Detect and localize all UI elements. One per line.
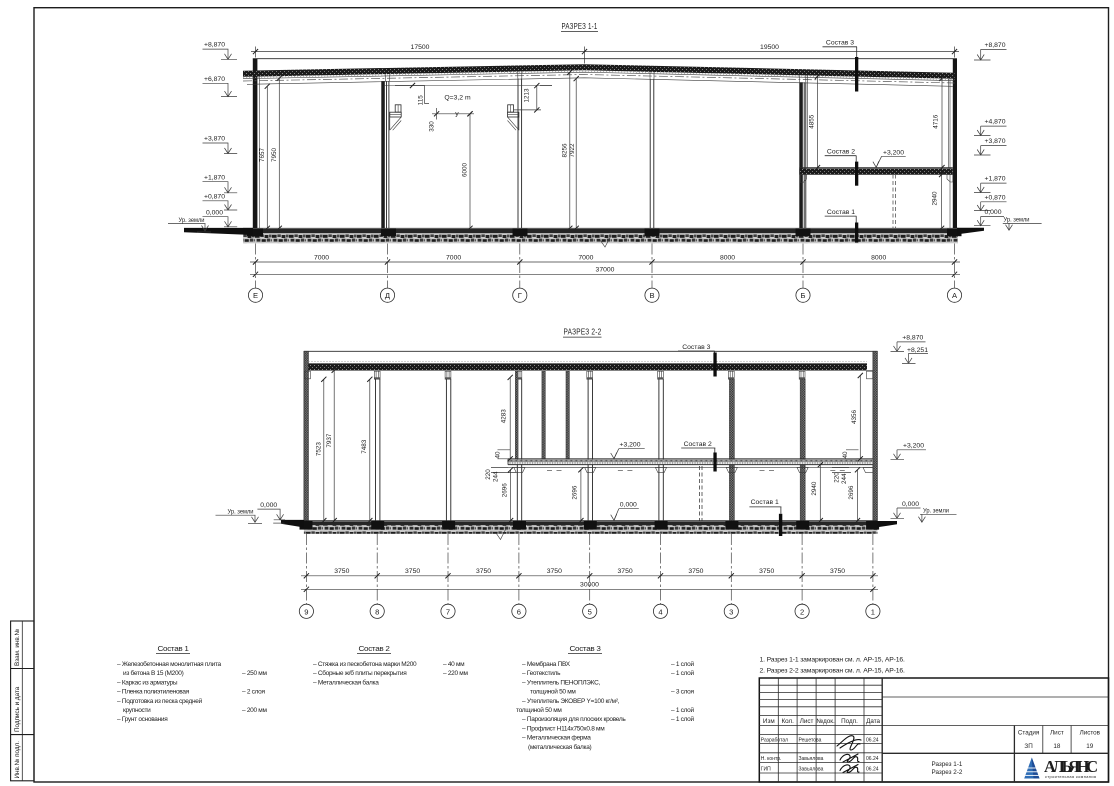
svg-text:– 1 слой: – 1 слой	[671, 706, 694, 714]
svg-text:8256: 8256	[562, 143, 569, 158]
svg-text:– 3 слоя: – 3 слоя	[671, 689, 694, 696]
svg-text:0,000: 0,000	[902, 501, 919, 508]
svg-text:Решетова: Решетова	[799, 738, 822, 744]
svg-text:2696: 2696	[848, 485, 855, 500]
svg-text:ЗП: ЗП	[1024, 743, 1033, 750]
svg-text:крупности: крупности	[123, 707, 151, 714]
svg-text:3: 3	[729, 607, 733, 616]
svg-text:+3,870: +3,870	[985, 138, 1006, 145]
svg-text:Б: Б	[801, 291, 806, 300]
svg-text:3750: 3750	[334, 568, 349, 575]
svg-text:+1,870: +1,870	[204, 174, 225, 181]
svg-text:толщиной 50 мм: толщиной 50 мм	[516, 706, 562, 714]
svg-text:17500: 17500	[411, 44, 430, 51]
svg-text:0,000: 0,000	[206, 209, 223, 216]
svg-text:– Грунт основания: – Грунт основания	[117, 716, 168, 723]
svg-text:Состав 2: Состав 2	[359, 644, 390, 653]
svg-text:толщиной 50 мм: толщиной 50 мм	[530, 688, 576, 696]
svg-text:+3,870: +3,870	[204, 136, 225, 143]
svg-text:– 200 мм: – 200 мм	[242, 707, 267, 714]
svg-text:Состав 1: Состав 1	[751, 499, 779, 506]
svg-text:Подп.: Подп.	[841, 718, 858, 725]
svg-text:Д: Д	[385, 291, 390, 300]
svg-text:Состав 3: Состав 3	[826, 40, 854, 47]
svg-text:7000: 7000	[446, 254, 461, 261]
svg-text:+3,200: +3,200	[620, 442, 641, 449]
svg-text:40: 40	[495, 451, 502, 459]
svg-text:0,000: 0,000	[620, 502, 637, 509]
svg-text:Завьялова: Завьялова	[799, 767, 824, 773]
svg-text:Ур. земли: Ур. земли	[1004, 216, 1030, 223]
svg-text:– 40 мм: – 40 мм	[443, 661, 465, 668]
svg-text:Лист: Лист	[1050, 730, 1064, 737]
svg-text:Состав 2: Состав 2	[827, 149, 855, 156]
svg-text:7657: 7657	[259, 148, 266, 163]
svg-text:РАЗРЕЗ 2-2: РАЗРЕЗ 2-2	[564, 327, 602, 337]
svg-text:+1,870: +1,870	[985, 176, 1006, 183]
svg-text:+8,870: +8,870	[985, 42, 1006, 49]
svg-text:– Сборные ж/б плиты перекрытия: – Сборные ж/б плиты перекрытия	[313, 669, 407, 677]
svg-text:4855: 4855	[809, 114, 816, 129]
svg-text:– 2 слоя: – 2 слоя	[242, 689, 265, 696]
svg-text:+6,870: +6,870	[204, 76, 225, 83]
svg-text:РАЗРЕЗ 1-1: РАЗРЕЗ 1-1	[562, 21, 598, 31]
svg-text:– 250 мм: – 250 мм	[242, 670, 267, 677]
svg-text:06.24: 06.24	[866, 738, 879, 744]
svg-text:Состав 1: Состав 1	[158, 644, 189, 653]
svg-text:+3,200: +3,200	[883, 149, 904, 156]
svg-text:244: 244	[492, 471, 499, 482]
svg-text:220: 220	[485, 469, 492, 480]
svg-text:Разработал: Разработал	[761, 738, 788, 744]
svg-text:Стадия: Стадия	[1018, 730, 1039, 737]
svg-text:3750: 3750	[688, 568, 703, 575]
svg-text:4: 4	[658, 607, 662, 616]
svg-text:7000: 7000	[578, 254, 593, 261]
svg-text:– 1 слой: – 1 слой	[671, 715, 694, 723]
svg-text:0,000: 0,000	[260, 502, 277, 509]
svg-text:2: 2	[800, 607, 804, 616]
svg-text:– Пленка полиэтиленовая: – Пленка полиэтиленовая	[117, 689, 190, 696]
svg-text:Состав 3: Состав 3	[682, 344, 710, 351]
svg-text:2940: 2940	[811, 481, 818, 496]
svg-text:6000: 6000	[461, 163, 468, 178]
svg-text:19500: 19500	[760, 44, 779, 51]
svg-text:7523: 7523	[316, 442, 323, 457]
svg-text:7: 7	[446, 607, 450, 616]
svg-text:– Подготовка из песка средней: – Подготовка из песка средней	[117, 697, 203, 705]
svg-text:+3,200: +3,200	[903, 443, 924, 450]
svg-text:В: В	[649, 291, 654, 300]
svg-text:1. Разрез 1-1 замаркирован см.: 1. Разрез 1-1 замаркирован см. л. АР-15,…	[760, 657, 905, 664]
svg-text:8000: 8000	[871, 254, 886, 261]
svg-text:2940: 2940	[932, 191, 939, 206]
svg-text:Подпись и дата: Подпись и дата	[14, 686, 21, 732]
svg-text:Взам. инв.№: Взам. инв.№	[14, 628, 21, 666]
svg-text:– 1 слой: – 1 слой	[671, 669, 694, 677]
svg-text:Завьялова: Завьялова	[799, 756, 824, 762]
svg-text:– Геотекстиль: – Геотекстиль	[522, 670, 561, 677]
svg-text:Ур. земли: Ур. земли	[179, 217, 205, 224]
svg-text:– Утеплитель ЭКОВЕР Y=100 кг/м: – Утеплитель ЭКОВЕР Y=100 кг/м²,	[522, 698, 620, 705]
svg-text:30000: 30000	[580, 582, 599, 589]
svg-text:Ур. земли: Ур. земли	[923, 507, 949, 514]
svg-text:– Мембрана ПВХ: – Мембрана ПВХ	[522, 660, 571, 668]
svg-text:+0,870: +0,870	[985, 194, 1006, 201]
svg-text:+8,870: +8,870	[902, 335, 923, 342]
svg-text:1: 1	[871, 607, 875, 616]
svg-text:– 1 слой: – 1 слой	[671, 660, 694, 668]
svg-text:+0,870: +0,870	[204, 194, 225, 201]
svg-text:– 220 мм: – 220 мм	[443, 670, 468, 677]
svg-text:3750: 3750	[476, 568, 491, 575]
svg-text:Г: Г	[518, 291, 522, 300]
svg-text:Изм: Изм	[763, 718, 775, 725]
svg-text:Инв.№ подл.: Инв.№ подл.	[14, 741, 21, 779]
svg-text:Н. контр.: Н. контр.	[761, 756, 782, 762]
svg-text:0,000: 0,000	[984, 209, 1001, 216]
svg-text:5: 5	[588, 607, 592, 616]
svg-text:– Профлист Н114х750х0.8 мм: – Профлист Н114х750х0.8 мм	[522, 725, 605, 732]
svg-text:06.24: 06.24	[866, 756, 879, 762]
svg-text:– Металлическая балка: – Металлическая балка	[313, 678, 379, 686]
svg-text:из бетона В 15 (М200): из бетона В 15 (М200)	[123, 669, 184, 677]
svg-text:40: 40	[842, 451, 849, 459]
svg-text:19: 19	[1086, 743, 1094, 750]
svg-text:3750: 3750	[830, 568, 845, 575]
svg-text:3750: 3750	[759, 568, 774, 575]
svg-text:8: 8	[375, 607, 379, 616]
svg-text:– Каркас из арматуры: – Каркас из арматуры	[117, 679, 178, 686]
svg-text:– Стяжка из пескобетона марки: – Стяжка из пескобетона марки М200	[313, 660, 417, 668]
svg-text:Разрез 2-2: Разрез 2-2	[932, 769, 963, 776]
svg-text:Q=3,2 m: Q=3,2 m	[444, 95, 471, 102]
svg-text:244: 244	[841, 473, 848, 484]
svg-text:+8,251: +8,251	[907, 347, 928, 354]
svg-text:37000: 37000	[596, 267, 615, 274]
svg-text:– Пароизоляция для плоских кро: – Пароизоляция для плоских кровель	[522, 716, 626, 723]
svg-text:Ур. земли: Ур. земли	[228, 508, 254, 515]
svg-text:3750: 3750	[547, 568, 562, 575]
svg-text:3750: 3750	[405, 568, 420, 575]
svg-text:8000: 8000	[720, 254, 735, 261]
svg-text:+4,870: +4,870	[985, 119, 1006, 126]
svg-text:– Утеплитель ПЕНОПЛЭКС,: – Утеплитель ПЕНОПЛЭКС,	[522, 679, 600, 686]
svg-text:2. Разрез 2-2 замаркирован см.: 2. Разрез 2-2 замаркирован см. л. АР-15,…	[760, 668, 905, 675]
svg-text:7937: 7937	[326, 433, 333, 448]
svg-text:4716: 4716	[932, 114, 939, 129]
svg-text:4356: 4356	[851, 410, 858, 425]
svg-text:– Металлическая ферма: – Металлическая ферма	[522, 735, 591, 742]
svg-text:у: у	[455, 111, 459, 118]
svg-text:Кол.: Кол.	[781, 718, 794, 725]
svg-text:– Железобетонная монолитная п: – Железобетонная монолитная плита	[117, 660, 222, 668]
svg-text:6: 6	[517, 607, 521, 616]
svg-text:Листов: Листов	[1080, 730, 1101, 737]
svg-text:+8,870: +8,870	[204, 42, 225, 49]
svg-text:220: 220	[833, 472, 840, 483]
svg-text:4283: 4283	[501, 409, 508, 424]
svg-text:строительная компания: строительная компания	[1045, 774, 1096, 779]
svg-text:Состав 2: Состав 2	[684, 441, 712, 448]
svg-text:Состав 1: Состав 1	[827, 209, 855, 216]
svg-text:Лист: Лист	[800, 718, 814, 725]
svg-text:7000: 7000	[314, 254, 329, 261]
svg-text:№док.: №док.	[816, 718, 835, 725]
svg-text:18: 18	[1053, 743, 1061, 750]
svg-text:Состав 3: Состав 3	[570, 644, 601, 653]
svg-text:Разрез 1-1: Разрез 1-1	[932, 761, 963, 768]
svg-text:ГИП: ГИП	[761, 767, 771, 773]
svg-text:7950: 7950	[271, 148, 278, 163]
svg-text:06.24: 06.24	[866, 767, 879, 773]
svg-text:Е: Е	[253, 291, 258, 300]
svg-text:(металлическая балка): (металлическая балка)	[528, 743, 592, 751]
svg-text:1213: 1213	[523, 88, 530, 103]
svg-text:Дата: Дата	[866, 718, 880, 725]
svg-text:9: 9	[304, 607, 308, 616]
svg-text:2696: 2696	[501, 483, 508, 498]
svg-text:115: 115	[418, 95, 425, 106]
svg-text:3750: 3750	[618, 568, 633, 575]
svg-text:7483: 7483	[361, 439, 368, 454]
svg-text:7922: 7922	[569, 143, 576, 158]
svg-text:2696: 2696	[572, 485, 579, 500]
svg-text:330: 330	[428, 121, 435, 132]
